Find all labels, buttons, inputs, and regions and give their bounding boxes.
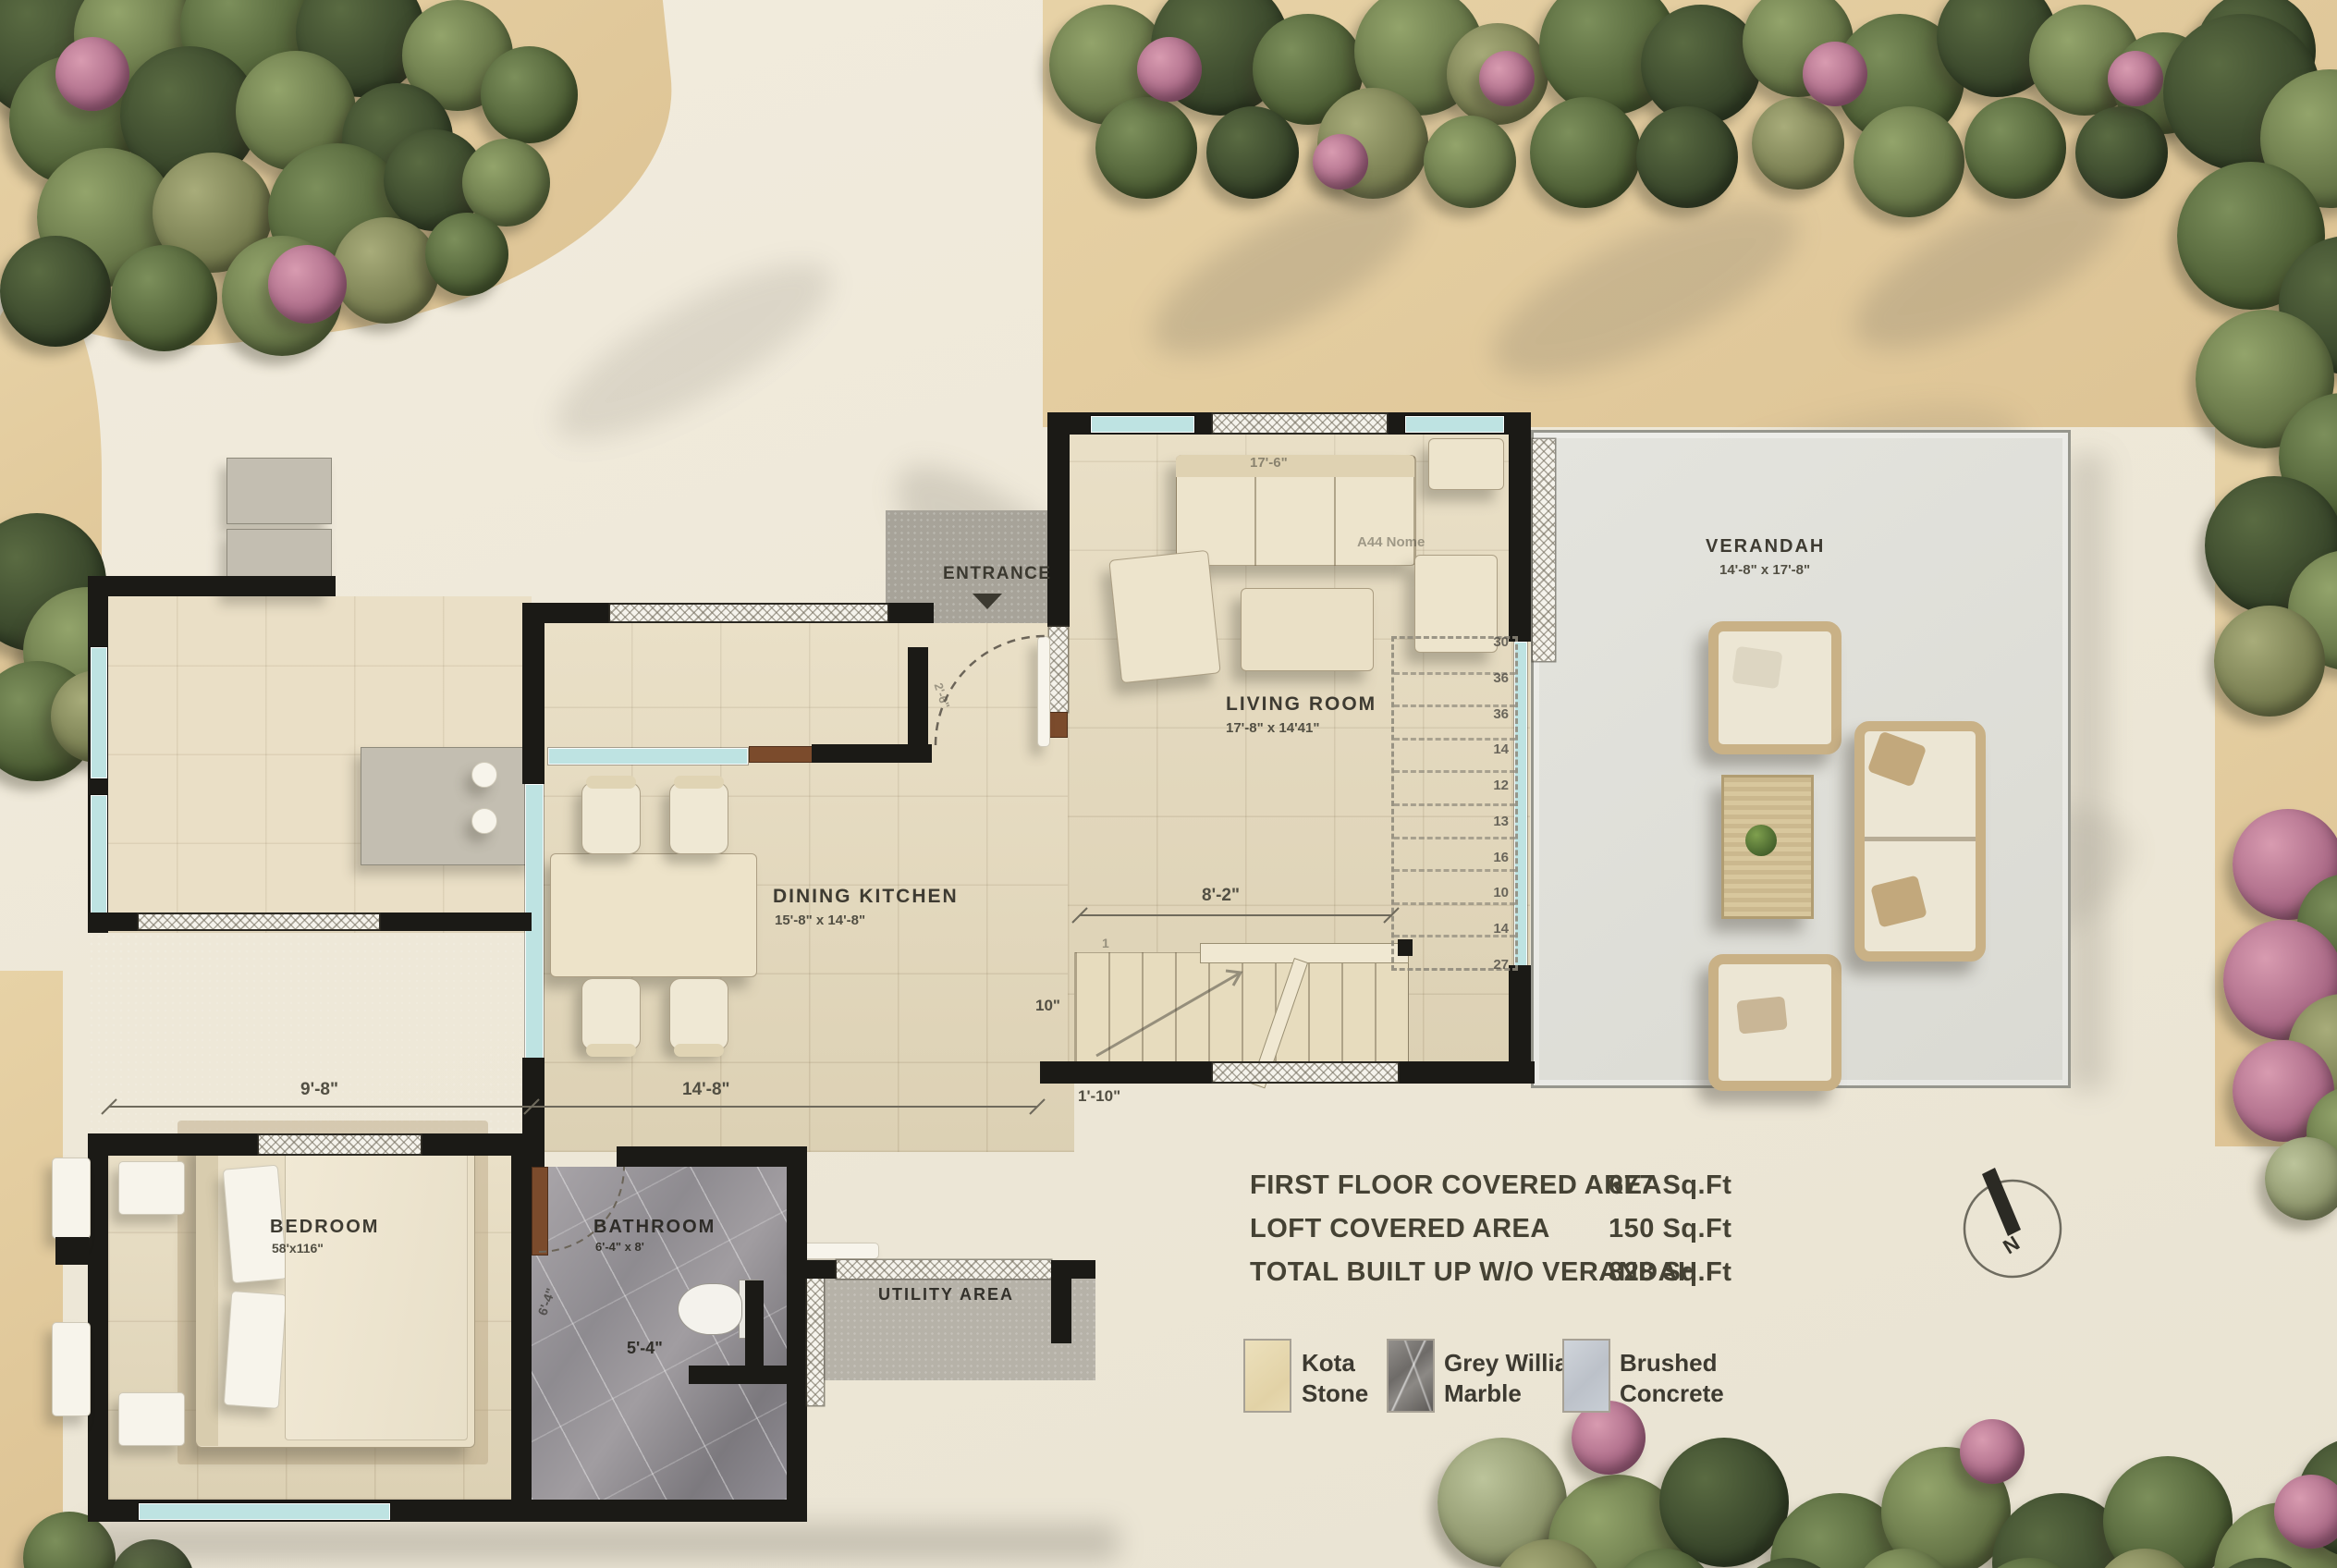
verandah-label: VERANDAH: [1706, 536, 1825, 557]
bathroom-label: BATHROOM: [593, 1217, 716, 1238]
dim-tread: 10": [1035, 997, 1060, 1015]
dim-bedroom-width: 9'-8": [300, 1080, 338, 1100]
stat-row: FIRST FLOOR COVERED AREA 677 Sq.Ft: [1250, 1170, 1915, 1206]
dim-offset: 1'-10": [1078, 1087, 1120, 1106]
living-room-dims: 17'-8" x 14'41": [1226, 720, 1319, 736]
dining-kitchen-dims: 15'-8" x 14'-8": [775, 913, 865, 928]
living-room-label: LIVING ROOM: [1226, 693, 1377, 716]
legend-label: Brushed Concrete: [1620, 1348, 1740, 1408]
dim-bath-width: 5'-4": [627, 1339, 663, 1358]
dim-kitchen-width: 14'-8": [682, 1080, 730, 1100]
dim-living-top: 17'-6": [1250, 455, 1288, 471]
floor-plan-canvas: 30363614121316101427 ENTRANCE LIVING ROO…: [0, 0, 2337, 1568]
stat-label: FIRST FLOOR COVERED AREA: [1250, 1170, 1662, 1200]
bedroom-label: BEDROOM: [270, 1217, 379, 1238]
bathroom-dims: 6'-4" x 8': [595, 1240, 644, 1254]
bedroom-dims: 58'x116": [272, 1241, 324, 1256]
verandah-dims: 14'-8" x 17'-8": [1719, 562, 1810, 578]
entrance-arrow-icon: [973, 594, 1002, 609]
utility-area-label: UTILITY AREA: [878, 1285, 1014, 1305]
legend-swatch-brushed-concrete: [1562, 1339, 1610, 1413]
stat-value: 828 Sq.Ft: [1609, 1257, 1731, 1288]
linework: [0, 0, 2337, 1568]
dim-stair-run: 8'-2": [1202, 886, 1240, 906]
stat-value: 150 Sq.Ft: [1609, 1214, 1731, 1244]
stat-label: LOFT COVERED AREA: [1250, 1214, 1550, 1243]
stat-row: TOTAL BUILT UP W/O VERANDAH 828 Sq.Ft: [1250, 1257, 1915, 1292]
legend-swatch-grey-william-marble: [1387, 1339, 1435, 1413]
stat-row: LOFT COVERED AREA 150 Sq.Ft: [1250, 1214, 1915, 1249]
plan-note: A44 Nome: [1357, 534, 1425, 550]
legend-swatch-kota-stone: [1243, 1339, 1291, 1413]
stat-value: 677 Sq.Ft: [1609, 1170, 1731, 1201]
legend-label: Kota Stone: [1302, 1348, 1385, 1408]
dim-stair-start: 1: [1102, 936, 1109, 950]
entrance-label: ENTRANCE: [943, 564, 1052, 584]
dining-kitchen-label: DINING KITCHEN: [773, 886, 959, 908]
